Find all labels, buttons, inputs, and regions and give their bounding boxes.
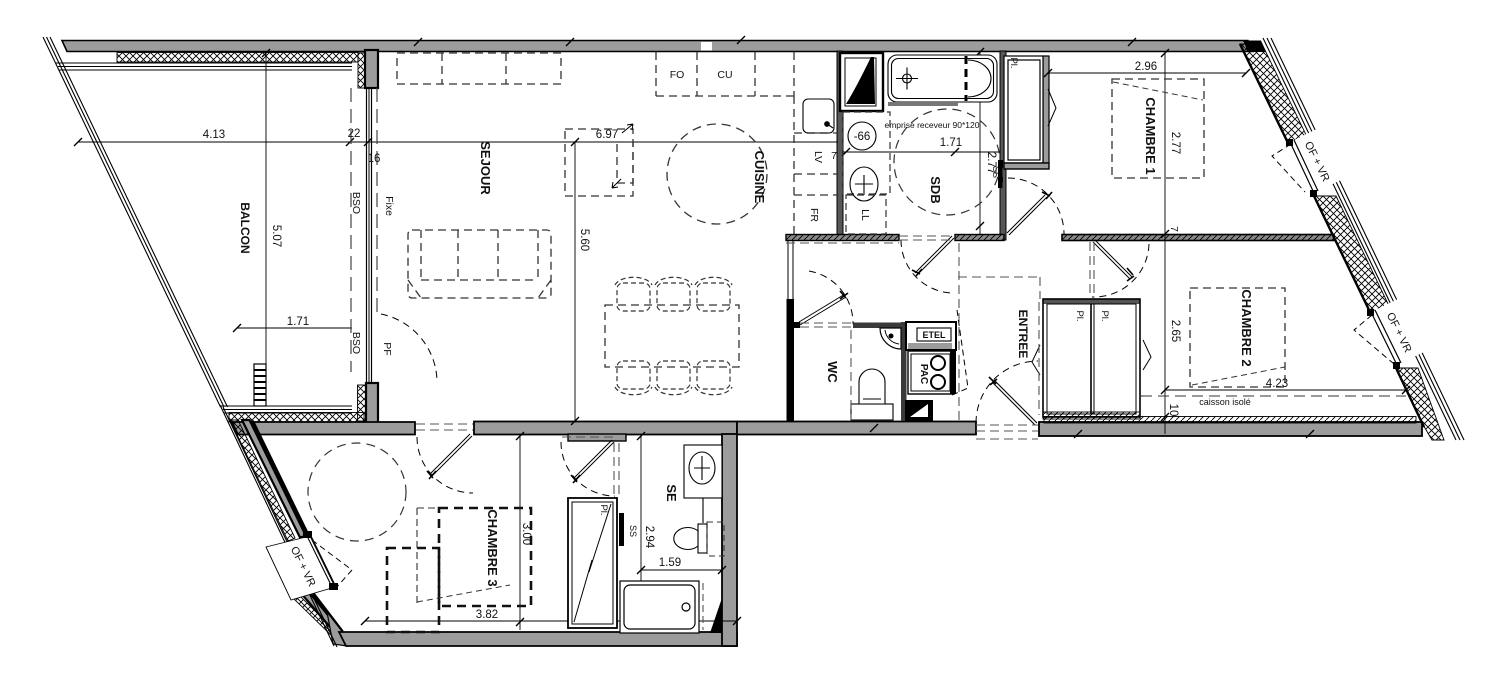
- svg-text:BALCON: BALCON: [238, 202, 252, 253]
- svg-text:SS: SS: [628, 525, 638, 537]
- svg-text:BSO: BSO: [350, 192, 362, 214]
- svg-text:ENTREE: ENTREE: [1016, 310, 1030, 359]
- svg-text:16: 16: [368, 153, 381, 165]
- svg-text:LV: LV: [812, 151, 824, 163]
- svg-text:2.77: 2.77: [1169, 132, 1181, 154]
- svg-text:10: 10: [1167, 404, 1179, 417]
- svg-text:5.07: 5.07: [270, 225, 282, 247]
- svg-text:7: 7: [831, 150, 837, 162]
- svg-text:Pl.: Pl.: [1008, 57, 1019, 68]
- svg-text:4.23: 4.23: [1266, 378, 1288, 390]
- svg-text:SS: SS: [991, 166, 1001, 178]
- svg-text:caisson isolé: caisson isolé: [1199, 397, 1251, 407]
- svg-text:3.00: 3.00: [520, 523, 532, 545]
- svg-text:3.82: 3.82: [476, 609, 498, 621]
- svg-text:1.71: 1.71: [940, 137, 962, 149]
- svg-text:5.60: 5.60: [578, 229, 590, 251]
- svg-text:LL: LL: [859, 209, 871, 221]
- svg-text:Pl.: Pl.: [1099, 310, 1110, 321]
- svg-text:FO: FO: [670, 69, 685, 81]
- svg-text:PF: PF: [381, 342, 393, 355]
- svg-text:2.65: 2.65: [1169, 320, 1181, 342]
- svg-text:SDB: SDB: [928, 176, 943, 203]
- svg-text:6.97: 6.97: [596, 129, 618, 141]
- svg-text:WC: WC: [825, 361, 840, 383]
- svg-text:Fixe: Fixe: [383, 196, 395, 216]
- svg-text:SEJOUR: SEJOUR: [478, 141, 493, 195]
- svg-text:Pl.: Pl.: [598, 504, 609, 515]
- svg-text:ETEL: ETEL: [922, 330, 946, 340]
- svg-text:-66: -66: [854, 131, 871, 143]
- svg-text:1.71: 1.71: [287, 316, 309, 328]
- svg-text:CUISINE: CUISINE: [752, 151, 767, 204]
- svg-text:2.94: 2.94: [643, 526, 655, 549]
- svg-text:4.13: 4.13: [203, 129, 225, 141]
- svg-text:CHAMBRE 2: CHAMBRE 2: [1239, 289, 1254, 366]
- svg-text:FR: FR: [808, 208, 820, 222]
- svg-text:BSO: BSO: [350, 332, 362, 354]
- svg-text:Pl.: Pl.: [1074, 310, 1085, 321]
- svg-text:SE: SE: [664, 484, 679, 502]
- svg-text:22: 22: [348, 128, 361, 140]
- svg-text:2.96: 2.96: [1135, 61, 1157, 73]
- svg-text:1.59: 1.59: [659, 557, 681, 569]
- svg-text:7: 7: [1168, 226, 1179, 232]
- svg-text:emprise receveur 90*120: emprise receveur 90*120: [885, 120, 980, 130]
- svg-text:PAC: PAC: [918, 364, 929, 384]
- svg-text:CU: CU: [717, 69, 732, 81]
- svg-text:CHAMBRE 1: CHAMBRE 1: [1143, 97, 1158, 174]
- svg-text:CHAMBRE 3: CHAMBRE 3: [485, 509, 500, 586]
